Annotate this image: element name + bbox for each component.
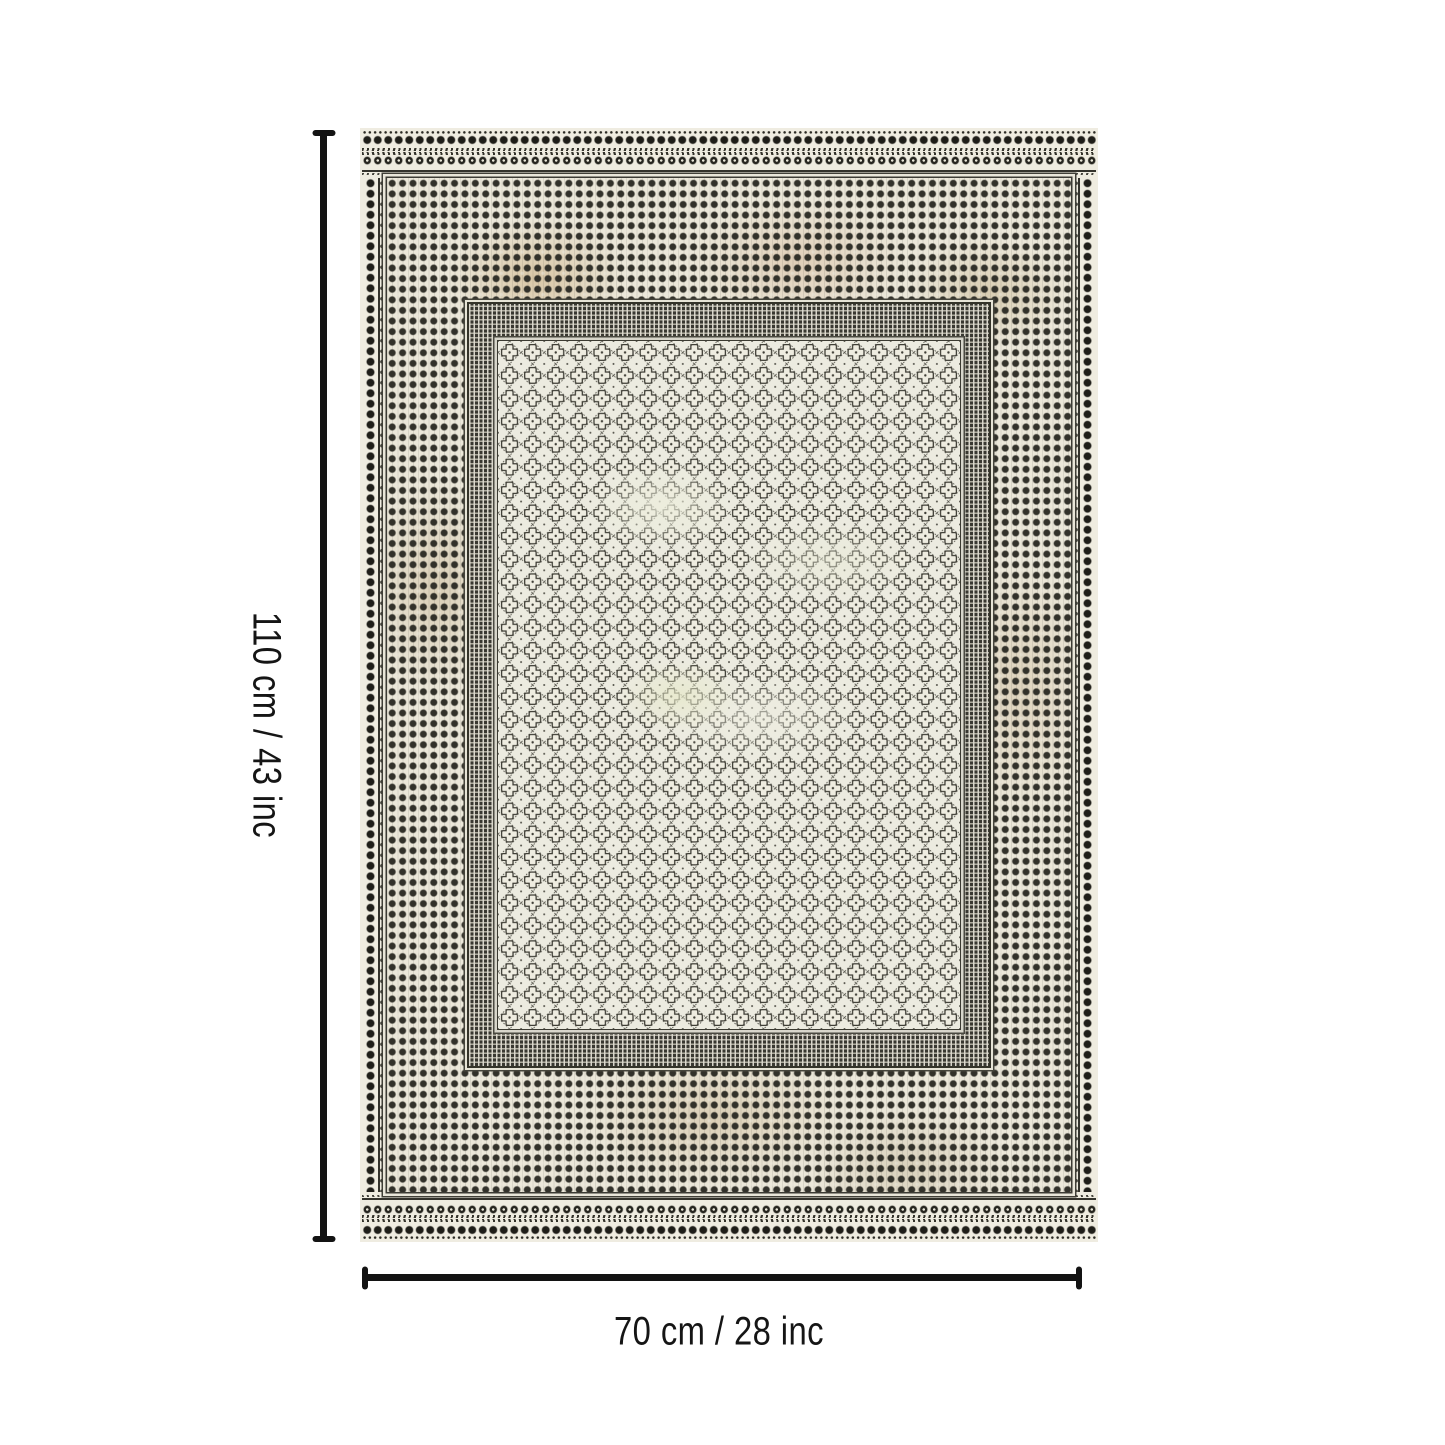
rug-edge-band-left [362, 178, 387, 1192]
horizontal-dimension-label: 70 cm / 28 inc [614, 1310, 824, 1355]
rug-edge-band-top [362, 130, 1096, 178]
rug-wear-patches [498, 341, 960, 1029]
vertical-dimension-label: 110 cm / 43 inc [244, 612, 289, 838]
product-dimension-figure: 110 cm / 43 inc 70 cm / 28 inc [0, 0, 1445, 1445]
rug-image [360, 128, 1098, 1242]
rug-center-field [497, 340, 961, 1030]
rug-edge-band-bottom [362, 1192, 1096, 1240]
vertical-dimension-line [320, 130, 327, 1242]
horizontal-dimension-line [362, 1274, 1082, 1281]
rug-edge-band-right [1071, 178, 1096, 1192]
